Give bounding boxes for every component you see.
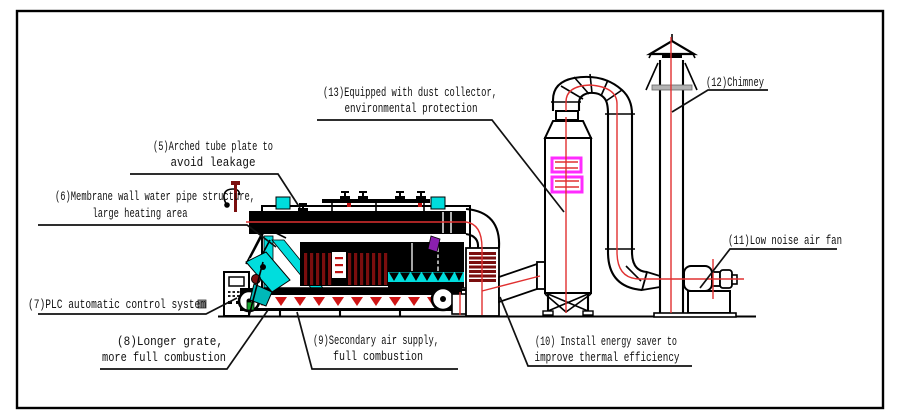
grate-flame-arrows — [256, 297, 439, 306]
label-12-line1: (12)Chimney — [706, 75, 764, 90]
label-8-line2: more full combustion — [102, 350, 226, 365]
dust-collector — [543, 111, 593, 315]
label-13-line2: environmental protection — [345, 101, 478, 116]
plc-screen — [229, 277, 244, 286]
label-5-line2: avoid leakage — [171, 155, 256, 170]
boiler-diagram-canvas: (5)Arched tube plate to avoid leakage (6… — [0, 0, 900, 420]
collector-hopper — [543, 293, 593, 315]
leader-line-12 — [672, 90, 768, 112]
label-8-line1: (8)Longer grate, — [117, 334, 223, 349]
label-10-line2: improve thermal efficiency — [535, 350, 680, 365]
label-6-line2: large heating area — [93, 206, 188, 221]
label-13-line1: (13)Equipped with dust collector, — [323, 85, 497, 100]
fan-inlet-cone — [642, 272, 660, 290]
boiler-body — [224, 181, 470, 316]
fan-pedestal — [688, 291, 730, 313]
label-11-line1: (11)Low noise air fan — [728, 233, 842, 248]
label-9-line1: (9)Secondary air supply, — [313, 333, 439, 348]
tube-bank — [300, 242, 388, 286]
chimney-rain-cap — [650, 41, 694, 54]
label-7-line1: (7)PLC automatic control system — [28, 297, 206, 312]
label-9-line2: full combustion — [333, 349, 423, 364]
air-fan — [654, 266, 737, 317]
label-5-line1: (5)Arched tube plate to — [153, 139, 273, 154]
chimney-platform-band — [652, 85, 692, 90]
label-10-line1: (10) Install energy saver to — [535, 334, 677, 349]
leader-line-6 — [38, 225, 276, 247]
label-6-line1: (6)Membrane wall water pipe structure, — [55, 189, 255, 204]
